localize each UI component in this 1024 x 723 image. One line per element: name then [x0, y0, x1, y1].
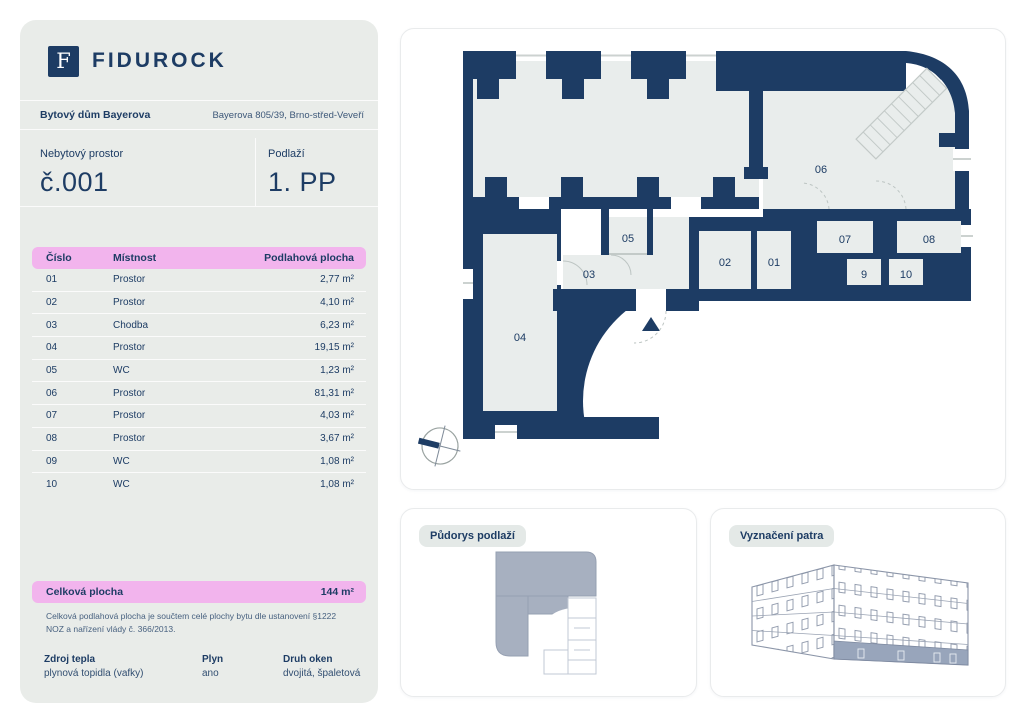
table-row: 05 WC 1,23 m²	[32, 359, 366, 382]
room-area: 3,67 m²	[320, 433, 354, 444]
plan-room-02: 02	[719, 257, 731, 269]
plan-room-9: 9	[861, 269, 867, 281]
room-number: 07	[46, 410, 113, 421]
building-elevation	[738, 535, 978, 685]
room-name: Prostor	[113, 388, 315, 399]
room-name: Prostor	[113, 342, 315, 353]
details-row: Zdroj tepla plynová topidla (vafky) Plyn…	[44, 654, 362, 679]
room-area: 1,08 m²	[320, 456, 354, 467]
table-row: 04 Prostor 19,15 m²	[32, 336, 366, 359]
room-area: 1,08 m²	[320, 479, 354, 490]
col-header-room: Místnost	[113, 252, 264, 264]
brand-wordmark: FIDUROCK	[92, 49, 227, 73]
floor-label: Podlaží	[268, 148, 378, 160]
rooms-table-header: Číslo Místnost Podlahová plocha	[32, 247, 366, 269]
rooms-table: Číslo Místnost Podlahová plocha 01 Prost…	[32, 247, 366, 495]
room-number: 03	[46, 320, 113, 331]
rooms-table-body: 01 Prostor 2,77 m² 02 Prostor 4,10 m² 03…	[32, 269, 366, 495]
detail-label: Druh oken	[283, 654, 362, 665]
floor-plan-drawing: 06 03 05 02 01 07 08 9 10 04	[461, 49, 985, 469]
detail-value: dvojitá, špaletová	[283, 668, 362, 679]
unit-type-label: Nebytový prostor	[40, 148, 255, 160]
table-row: 06 Prostor 81,31 m²	[32, 381, 366, 404]
detail-value: plynová topidla (vafky)	[44, 668, 202, 679]
plan-room-07: 07	[839, 234, 851, 246]
plan-room-05: 05	[622, 233, 634, 245]
detail-value: ano	[202, 668, 283, 679]
room-name: WC	[113, 365, 320, 376]
room-area: 2,77 m²	[320, 274, 354, 285]
col-header-area: Podlahová plocha	[264, 252, 354, 264]
room-area: 81,31 m²	[315, 388, 354, 399]
room-number: 09	[46, 456, 113, 467]
col-header-number: Číslo	[46, 252, 113, 264]
room-area: 6,23 m²	[320, 320, 354, 331]
room-area: 4,10 m²	[320, 297, 354, 308]
room-number: 04	[46, 342, 113, 353]
room-area: 4,03 m²	[320, 410, 354, 421]
total-value: 144 m²	[321, 586, 354, 598]
unit-number-block: Nebytový prostor č.001	[20, 138, 255, 206]
compass-icon	[417, 423, 463, 469]
legal-note: Celková podlahová plocha je součtem celé…	[46, 610, 348, 636]
room-number: 10	[46, 479, 113, 490]
floor-plan-thumbnail	[474, 540, 624, 680]
plan-room-10: 10	[900, 269, 912, 281]
table-row: 01 Prostor 2,77 m²	[32, 269, 366, 291]
floor-value: 1. PP	[268, 167, 378, 198]
room-name: Prostor	[113, 274, 320, 285]
detail-label: Zdroj tepla	[44, 654, 202, 665]
building-address: Bayerova 805/39, Brno-střed-Veveří	[212, 110, 364, 121]
plan-room-08: 08	[923, 234, 935, 246]
table-row: 08 Prostor 3,67 m²	[32, 427, 366, 450]
brand-logo: F FIDUROCK	[48, 45, 227, 77]
room-number: 01	[46, 274, 113, 285]
floor-plan-card: 06 03 05 02 01 07 08 9 10 04	[400, 28, 1006, 490]
plan-room-03: 03	[583, 269, 595, 281]
room-area: 19,15 m²	[315, 342, 354, 353]
building-row: Bytový dům Bayerova Bayerova 805/39, Brn…	[20, 100, 378, 130]
table-row: 10 WC 1,08 m²	[32, 472, 366, 495]
plan-room-06: 06	[815, 164, 827, 176]
room-name: Chodba	[113, 320, 320, 331]
room-number: 05	[46, 365, 113, 376]
detail-label: Plyn	[202, 654, 283, 665]
room-number: 06	[46, 388, 113, 399]
room-name: WC	[113, 479, 320, 490]
detail-windows: Druh oken dvojitá, špaletová	[283, 654, 362, 679]
detail-heat-source: Zdroj tepla plynová topidla (vafky)	[44, 654, 202, 679]
room-area: 1,23 m²	[320, 365, 354, 376]
plan-room-04: 04	[514, 332, 526, 344]
room-name: WC	[113, 456, 320, 467]
detail-gas: Plyn ano	[202, 654, 283, 679]
total-area-bar: Celková plocha 144 m²	[32, 581, 366, 603]
table-row: 07 Prostor 4,03 m²	[32, 404, 366, 427]
room-name: Prostor	[113, 410, 320, 421]
info-panel: F FIDUROCK Bytový dům Bayerova Bayerova …	[20, 20, 378, 703]
room-number: 08	[46, 433, 113, 444]
room-number: 02	[46, 297, 113, 308]
room-name: Prostor	[113, 433, 320, 444]
table-row: 09 WC 1,08 m²	[32, 450, 366, 473]
table-row: 03 Chodba 6,23 m²	[32, 313, 366, 336]
floor-marking-card: Vyznačení patra	[710, 508, 1006, 697]
total-label: Celková plocha	[46, 586, 123, 598]
unit-number: č.001	[40, 167, 255, 198]
plan-room-01: 01	[768, 257, 780, 269]
brand-letter: F	[56, 49, 71, 73]
unit-floor-block: Podlaží 1. PP	[255, 138, 378, 206]
building-name: Bytový dům Bayerova	[40, 109, 150, 121]
room-name: Prostor	[113, 297, 320, 308]
brand-logo-mark: F	[48, 46, 79, 77]
floor-plan-thumbnail-card: Půdorys podlaží	[400, 508, 697, 697]
unit-info: Nebytový prostor č.001 Podlaží 1. PP	[20, 138, 378, 207]
table-row: 02 Prostor 4,10 m²	[32, 291, 366, 314]
